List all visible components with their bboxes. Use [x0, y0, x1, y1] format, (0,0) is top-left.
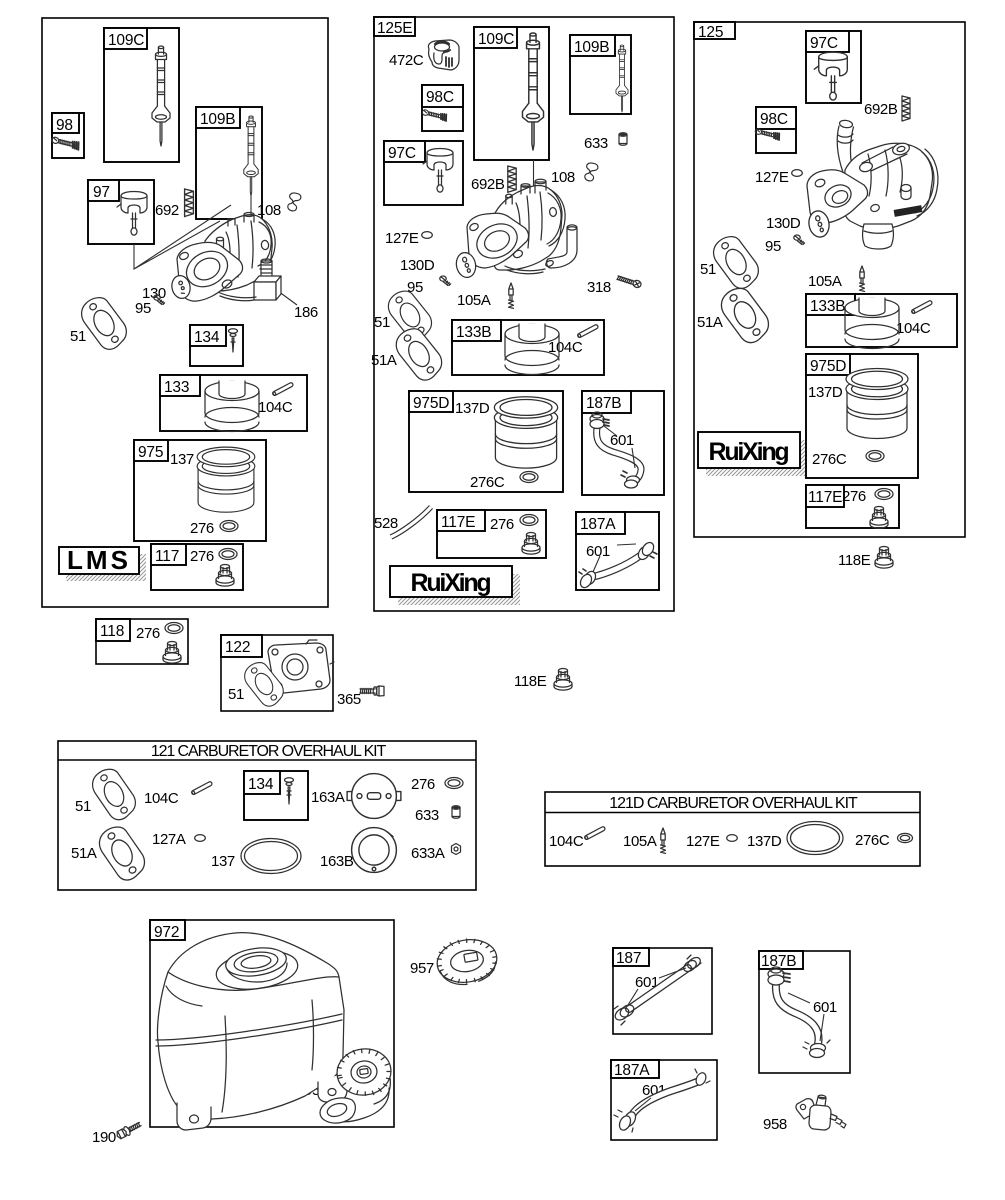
- svg-text:51A: 51A: [371, 352, 397, 369]
- svg-text:633A: 633A: [411, 845, 445, 862]
- svg-text:108: 108: [551, 169, 575, 186]
- svg-text:187A: 187A: [614, 1062, 650, 1079]
- svg-text:692B: 692B: [864, 101, 898, 118]
- svg-text:365: 365: [337, 691, 361, 708]
- svg-text:98C: 98C: [760, 111, 788, 128]
- svg-text:104C: 104C: [549, 833, 584, 850]
- svg-text:98: 98: [56, 117, 73, 134]
- svg-text:117E: 117E: [808, 489, 842, 506]
- svg-text:601: 601: [610, 432, 634, 449]
- svg-text:276: 276: [190, 520, 214, 537]
- svg-text:187: 187: [616, 950, 641, 967]
- svg-text:975D: 975D: [413, 395, 449, 412]
- svg-text:190: 190: [92, 1129, 116, 1146]
- svg-text:972: 972: [154, 924, 179, 941]
- svg-text:51A: 51A: [697, 314, 723, 331]
- svg-text:51: 51: [70, 328, 86, 345]
- svg-text:104C: 104C: [896, 320, 931, 337]
- svg-text:276C: 276C: [855, 832, 890, 849]
- svg-text:137D: 137D: [808, 384, 843, 401]
- svg-text:105A: 105A: [808, 273, 842, 290]
- svg-text:127A: 127A: [152, 831, 186, 848]
- svg-text:117E: 117E: [441, 514, 475, 531]
- svg-text:134: 134: [248, 776, 274, 793]
- svg-text:105A: 105A: [457, 292, 491, 309]
- svg-text:133B: 133B: [810, 298, 845, 315]
- svg-text:104C: 104C: [258, 399, 293, 416]
- svg-text:186: 186: [294, 304, 318, 321]
- svg-text:105A: 105A: [623, 833, 657, 850]
- svg-text:276: 276: [411, 776, 435, 793]
- svg-text:108: 108: [257, 202, 281, 219]
- svg-text:51A: 51A: [71, 845, 97, 862]
- svg-text:276: 276: [136, 625, 160, 642]
- svg-text:95: 95: [765, 238, 781, 255]
- svg-text:109B: 109B: [200, 111, 235, 128]
- svg-text:528: 528: [374, 515, 398, 532]
- svg-text:134: 134: [194, 329, 220, 346]
- svg-text:187B: 187B: [586, 395, 621, 412]
- svg-text:130D: 130D: [400, 257, 435, 274]
- svg-text:97C: 97C: [388, 145, 416, 162]
- svg-text:LMS: LMS: [67, 545, 131, 575]
- svg-text:137D: 137D: [455, 400, 490, 417]
- svg-text:692: 692: [155, 202, 179, 219]
- svg-text:RuiXing: RuiXing: [708, 438, 788, 466]
- svg-text:130D: 130D: [766, 215, 801, 232]
- svg-text:137: 137: [170, 451, 194, 468]
- svg-text:137D: 137D: [747, 833, 782, 850]
- svg-text:163A: 163A: [311, 789, 345, 806]
- svg-text:633: 633: [415, 807, 439, 824]
- svg-text:51: 51: [228, 686, 244, 703]
- svg-text:975: 975: [138, 444, 163, 461]
- svg-text:318: 318: [587, 279, 611, 296]
- svg-text:276: 276: [842, 488, 866, 505]
- svg-text:125: 125: [698, 24, 723, 41]
- svg-text:133: 133: [164, 379, 189, 396]
- svg-text:121 CARBURETOR OVERHAUL KIT: 121 CARBURETOR OVERHAUL KIT: [151, 743, 387, 760]
- svg-text:137: 137: [211, 853, 235, 870]
- svg-text:276C: 276C: [470, 474, 505, 491]
- svg-text:117: 117: [155, 548, 179, 565]
- svg-text:957: 957: [410, 960, 434, 977]
- svg-text:51: 51: [374, 314, 390, 331]
- svg-text:958: 958: [763, 1116, 787, 1133]
- svg-text:127E: 127E: [686, 833, 720, 850]
- svg-text:133B: 133B: [456, 324, 491, 341]
- svg-text:97C: 97C: [810, 35, 838, 52]
- svg-text:276: 276: [490, 516, 514, 533]
- svg-text:472C: 472C: [389, 52, 424, 69]
- svg-text:127E: 127E: [385, 230, 419, 247]
- svg-text:692B: 692B: [471, 176, 505, 193]
- svg-text:633: 633: [584, 135, 608, 152]
- svg-text:109C: 109C: [478, 31, 514, 48]
- svg-text:104C: 104C: [144, 790, 179, 807]
- svg-text:RuiXing: RuiXing: [410, 569, 490, 597]
- svg-text:118E: 118E: [514, 673, 547, 690]
- svg-text:109B: 109B: [574, 39, 609, 56]
- svg-text:121D CARBURETOR OVERHAUL KIT: 121D CARBURETOR OVERHAUL KIT: [609, 795, 858, 812]
- svg-text:601: 601: [813, 999, 837, 1016]
- svg-text:276: 276: [190, 548, 214, 565]
- svg-text:163B: 163B: [320, 853, 354, 870]
- svg-text:975D: 975D: [810, 358, 846, 375]
- svg-text:187A: 187A: [580, 516, 616, 533]
- svg-text:601: 601: [586, 543, 610, 560]
- svg-text:51: 51: [75, 798, 91, 815]
- svg-text:125E: 125E: [377, 20, 412, 37]
- svg-text:98C: 98C: [426, 89, 454, 106]
- svg-text:95: 95: [135, 300, 151, 317]
- svg-text:118E: 118E: [838, 552, 871, 569]
- svg-text:118: 118: [100, 623, 124, 640]
- svg-text:109C: 109C: [108, 32, 144, 49]
- svg-text:97: 97: [93, 184, 110, 201]
- svg-text:51: 51: [700, 261, 716, 278]
- svg-text:276C: 276C: [812, 451, 847, 468]
- svg-text:122: 122: [225, 639, 250, 656]
- svg-text:127E: 127E: [755, 169, 789, 186]
